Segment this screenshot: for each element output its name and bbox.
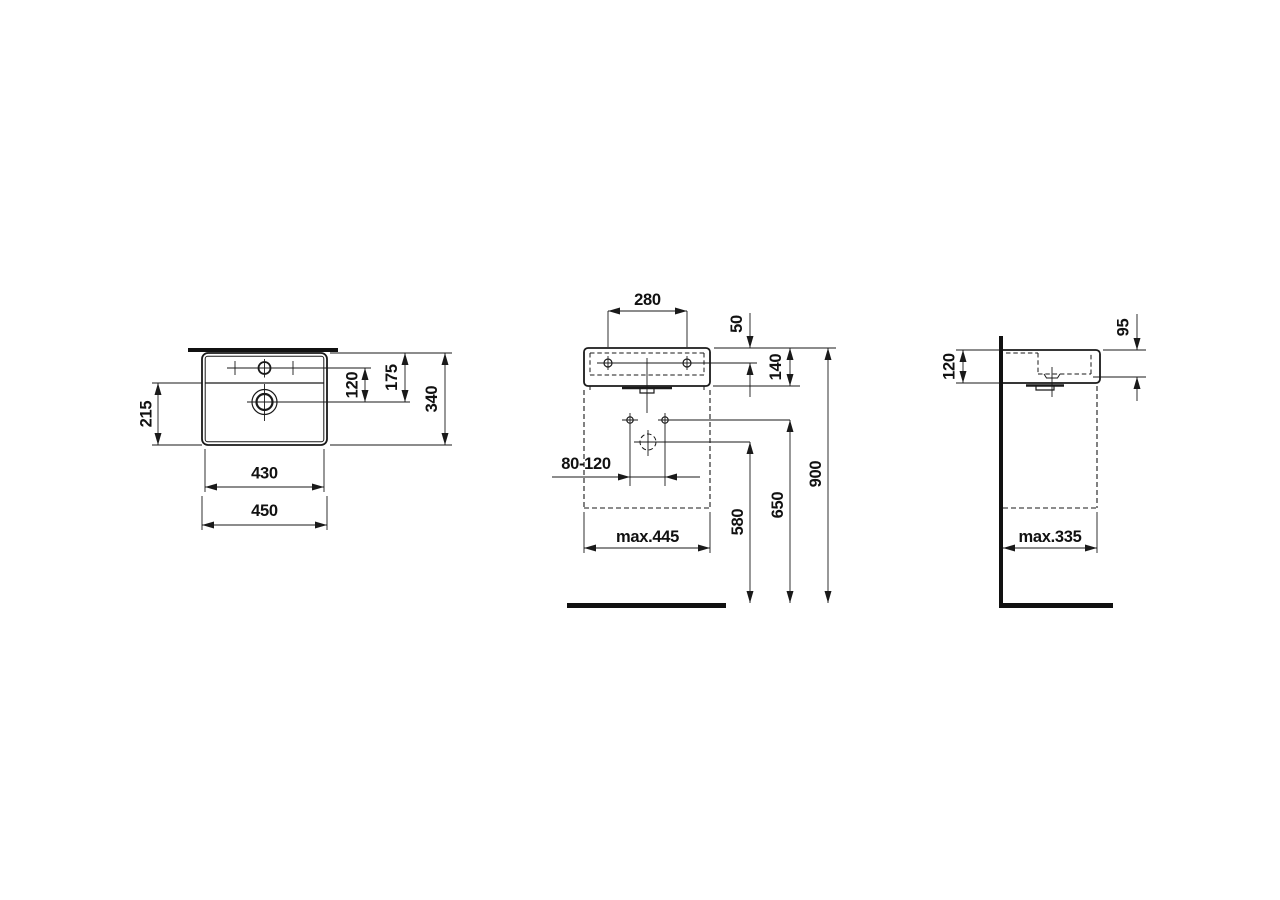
plan-wall-line xyxy=(188,348,338,352)
side-view: max.335 120 95 xyxy=(941,314,1147,606)
plan-view: 215 120 175 340 430 450 xyxy=(138,348,453,530)
ext-lines-280 xyxy=(608,311,687,347)
ext-lines-95 xyxy=(1093,350,1146,377)
dim-label-340: 340 xyxy=(423,386,441,413)
dim-label-650: 650 xyxy=(769,492,787,519)
dim-label-280: 280 xyxy=(634,291,661,309)
drawing-canvas: 215 120 175 340 430 450 xyxy=(0,0,1280,900)
dim-label-580: 580 xyxy=(729,509,747,536)
dim-label-max445: max.445 xyxy=(616,528,679,546)
dim-label-80-120: 80-120 xyxy=(561,455,611,473)
dim-label-175: 175 xyxy=(383,364,401,391)
side-siphon-envelope xyxy=(1003,386,1097,508)
dim-label-120-plan: 120 xyxy=(344,372,362,399)
dim-label-50: 50 xyxy=(728,315,746,333)
side-bowl-hidden xyxy=(1006,353,1091,374)
dim-label-max335: max.335 xyxy=(1018,528,1081,546)
dim-label-120-side: 120 xyxy=(941,353,959,380)
dim-label-430: 430 xyxy=(251,465,278,483)
washbasin-technical-drawing: 215 120 175 340 430 450 xyxy=(0,0,1280,900)
dim-label-900: 900 xyxy=(807,461,825,488)
dim-label-450: 450 xyxy=(251,502,278,520)
dim-label-95: 95 xyxy=(1115,319,1133,337)
dim-label-215: 215 xyxy=(138,401,156,428)
front-view: 280 50 140 80-120 max.4 xyxy=(552,291,836,606)
dim-label-140: 140 xyxy=(767,354,785,381)
